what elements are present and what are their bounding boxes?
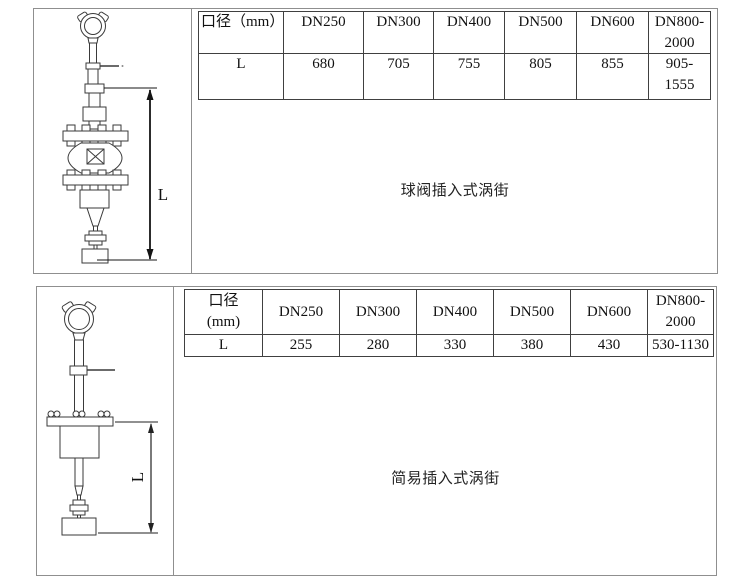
table-header-row: 口径 (mm) DN250 DN300 DN400 DN500 DN600 DN… — [185, 290, 714, 335]
stem-collar — [70, 366, 87, 375]
transmitter-head-inner — [69, 309, 90, 330]
table-data-row: L 255 280 330 380 430 530-1130 — [185, 335, 714, 357]
length-value-cell: 430 — [571, 335, 648, 357]
lower-flange — [63, 175, 128, 185]
dn-header-cell: DN800-2000 — [648, 290, 714, 335]
length-value-cell: 805 — [505, 54, 577, 100]
arrow-down-icon — [148, 523, 154, 533]
upper-flange — [63, 131, 128, 141]
dn-header-cell: DN300 — [364, 12, 434, 54]
length-row-label-cell: L — [185, 335, 263, 357]
arrow-up-icon — [148, 423, 154, 433]
dn-header-cell: DN500 — [494, 290, 571, 335]
dn-header-cell: DN800-2000 — [649, 12, 711, 54]
valve-bonnet — [80, 190, 109, 208]
table-data-row: L 680 705 755 805 855 905-1555 — [199, 54, 711, 100]
length-value-cell: 755 — [434, 54, 505, 100]
caption-ball-valve: 球阀插入式涡街 — [191, 179, 719, 200]
panel-ball-valve-insertion: L 口径（mm） DN250 DN300 DN400 DN500 DN600 D… — [33, 8, 718, 274]
ball-valve-flowmeter-drawing: L — [34, 9, 191, 275]
length-value-cell: 255 — [263, 335, 340, 357]
length-value-cell: 330 — [417, 335, 494, 357]
upper-stem — [90, 43, 97, 63]
arrow-down-icon — [147, 249, 154, 260]
length-value-cell: 380 — [494, 335, 571, 357]
probe-tip — [62, 518, 96, 535]
length-value-cell: 855 — [577, 54, 649, 100]
stem-collar — [85, 84, 104, 93]
dimension-label-L: L — [158, 185, 168, 204]
mounting-flange — [47, 417, 113, 426]
spec-sheet-page: L 口径（mm） DN250 DN300 DN400 DN500 DN600 D… — [0, 0, 750, 584]
diameter-header-cell: 口径 (mm) — [185, 290, 263, 335]
upper-stem — [75, 340, 84, 366]
arrow-up-icon — [147, 89, 154, 100]
length-value-cell: 705 — [364, 54, 434, 100]
simple-flowmeter-drawing: L — [37, 287, 173, 577]
dn-header-cell: DN400 — [417, 290, 494, 335]
dn-header-cell: DN250 — [263, 290, 340, 335]
transmitter-head-inner — [85, 18, 102, 35]
dn-header-cell: DN600 — [577, 12, 649, 54]
diameter-header-cell: 口径（mm） — [199, 12, 284, 54]
table-header-row: 口径（mm） DN250 DN300 DN400 DN500 DN600 DN8… — [199, 12, 711, 54]
caption-simple-insertion: 简易插入式涡街 — [173, 467, 718, 488]
length-value-cell: 530-1130 — [648, 335, 714, 357]
panel-simple-insertion: L 口径 (mm) DN250 DN300 DN400 DN500 DN600 … — [36, 286, 717, 576]
meter-body — [60, 426, 99, 458]
length-value-cell: 280 — [340, 335, 417, 357]
dn-header-cell: DN400 — [434, 12, 505, 54]
size-table-simple: 口径 (mm) DN250 DN300 DN400 DN500 DN600 DN… — [184, 289, 714, 357]
dimension-label-L: L — [128, 472, 147, 482]
length-value-cell: 680 — [284, 54, 364, 100]
dn-header-cell: DN600 — [571, 290, 648, 335]
length-value-cell: 905-1555 — [649, 54, 711, 100]
size-table-ball-valve: 口径（mm） DN250 DN300 DN400 DN500 DN600 DN8… — [198, 11, 711, 100]
length-row-label-cell: L — [199, 54, 284, 100]
dn-header-cell: DN500 — [505, 12, 577, 54]
dn-header-cell: DN300 — [340, 290, 417, 335]
probe-tip — [82, 249, 108, 263]
dn-header-cell: DN250 — [284, 12, 364, 54]
panel-divider — [191, 9, 192, 273]
panel-divider — [173, 287, 174, 575]
